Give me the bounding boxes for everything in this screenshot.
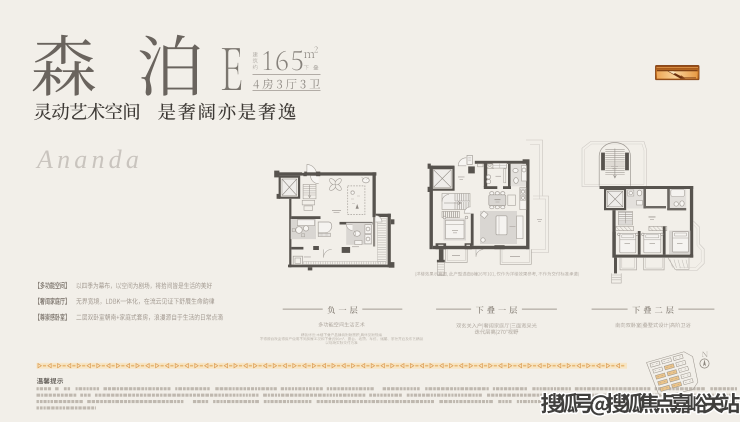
svg-text:Ananda: Ananda bbox=[35, 145, 143, 174]
